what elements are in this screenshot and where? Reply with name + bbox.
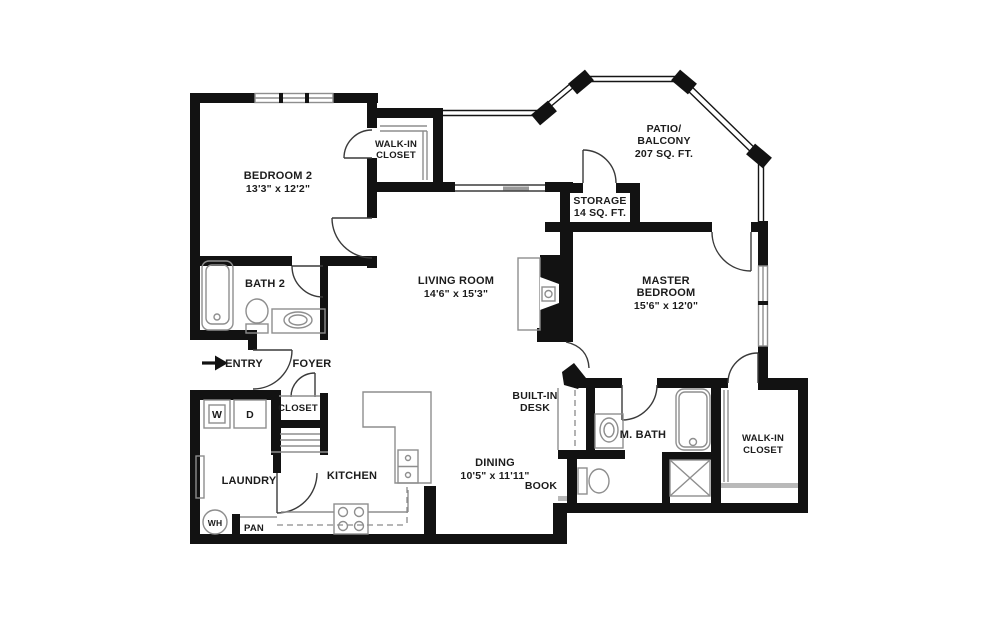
storage-area: 14 SQ. FT. (574, 207, 626, 219)
walkin-top-label-1: WALK-IN (375, 139, 417, 150)
walkin-master-label-2: CLOSET (743, 445, 783, 456)
dining-dims: 10'5" x 11'11" (460, 470, 529, 482)
mbath-label: M. BATH (620, 429, 666, 441)
master-dims: 15'6" x 12'0" (634, 300, 698, 312)
desk-label-1: BUILT-IN (512, 390, 557, 402)
dryer-label: D (246, 409, 254, 421)
bedroom2-dims: 13'3" x 12'2" (246, 183, 310, 195)
mbath-tub-icon (676, 389, 710, 450)
bath2-label: BATH 2 (245, 278, 285, 290)
mbath-fixtures (578, 389, 710, 496)
mbath-toilet-icon (589, 469, 609, 493)
patio-area: 207 SQ. FT. (635, 148, 693, 160)
mbath-sink-icon (600, 418, 618, 442)
toilet-icon (246, 299, 268, 323)
floor-plan-drawing: BEDROOM 2 13'3" x 12'2" WALK-IN CLOSET B… (0, 0, 998, 626)
mbath-toilet-tank (578, 468, 587, 494)
closet-label: CLOSET (278, 403, 318, 414)
desk-label-2: DESK (520, 402, 550, 414)
washer-label: W (212, 409, 222, 421)
master-label-2: BEDROOM (637, 287, 696, 299)
bedroom2-label: BEDROOM 2 (244, 170, 312, 182)
water-heater-label: WH (208, 518, 223, 528)
master-label-1: MASTER (642, 275, 690, 287)
entry-label: ENTRY (225, 358, 263, 370)
range-icon (334, 504, 368, 534)
kitchen-label: KITCHEN (327, 470, 377, 482)
laundry-label: LAUNDRY (222, 475, 277, 487)
living-room-label: LIVING ROOM (418, 275, 494, 287)
patio-label-2: BALCONY (637, 135, 690, 147)
storage-label: STORAGE (573, 195, 626, 207)
living-room-dims: 14'6" x 15'3" (424, 288, 488, 300)
walkin-top-label-2: CLOSET (376, 150, 416, 161)
laundry-fixtures (196, 400, 277, 534)
floor-plan: BEDROOM 2 13'3" x 12'2" WALK-IN CLOSET B… (0, 0, 998, 626)
dining-label: DINING (475, 457, 515, 469)
walkin-master-label-1: WALK-IN (742, 433, 784, 444)
bath2-fixtures (202, 261, 325, 333)
foyer-label: FOYER (293, 358, 332, 370)
pantry-label: PAN (244, 523, 264, 534)
patio-label-1: PATIO/ (647, 123, 682, 135)
book-label: BOOK (525, 480, 558, 492)
